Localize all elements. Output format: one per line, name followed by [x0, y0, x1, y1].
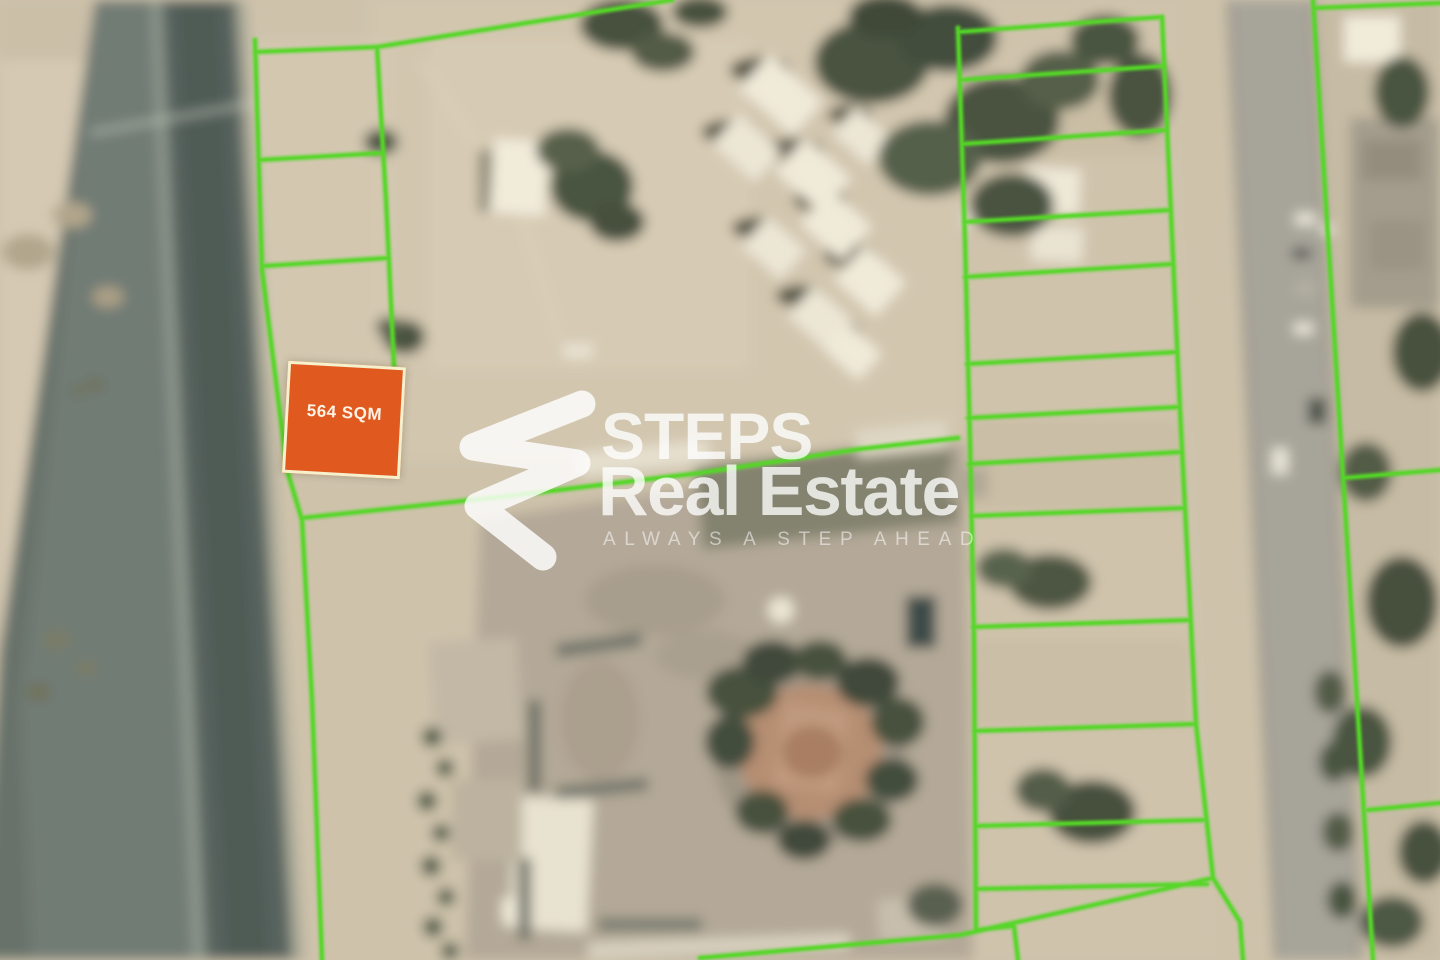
terrain-layer — [0, 0, 1440, 960]
satellite-map: 564 SQM STEPS Real Estate ALWAYS A STEP … — [0, 0, 1440, 960]
plot-area-label: 564 SQM — [306, 401, 382, 425]
highlighted-plot: 564 SQM — [282, 361, 406, 479]
